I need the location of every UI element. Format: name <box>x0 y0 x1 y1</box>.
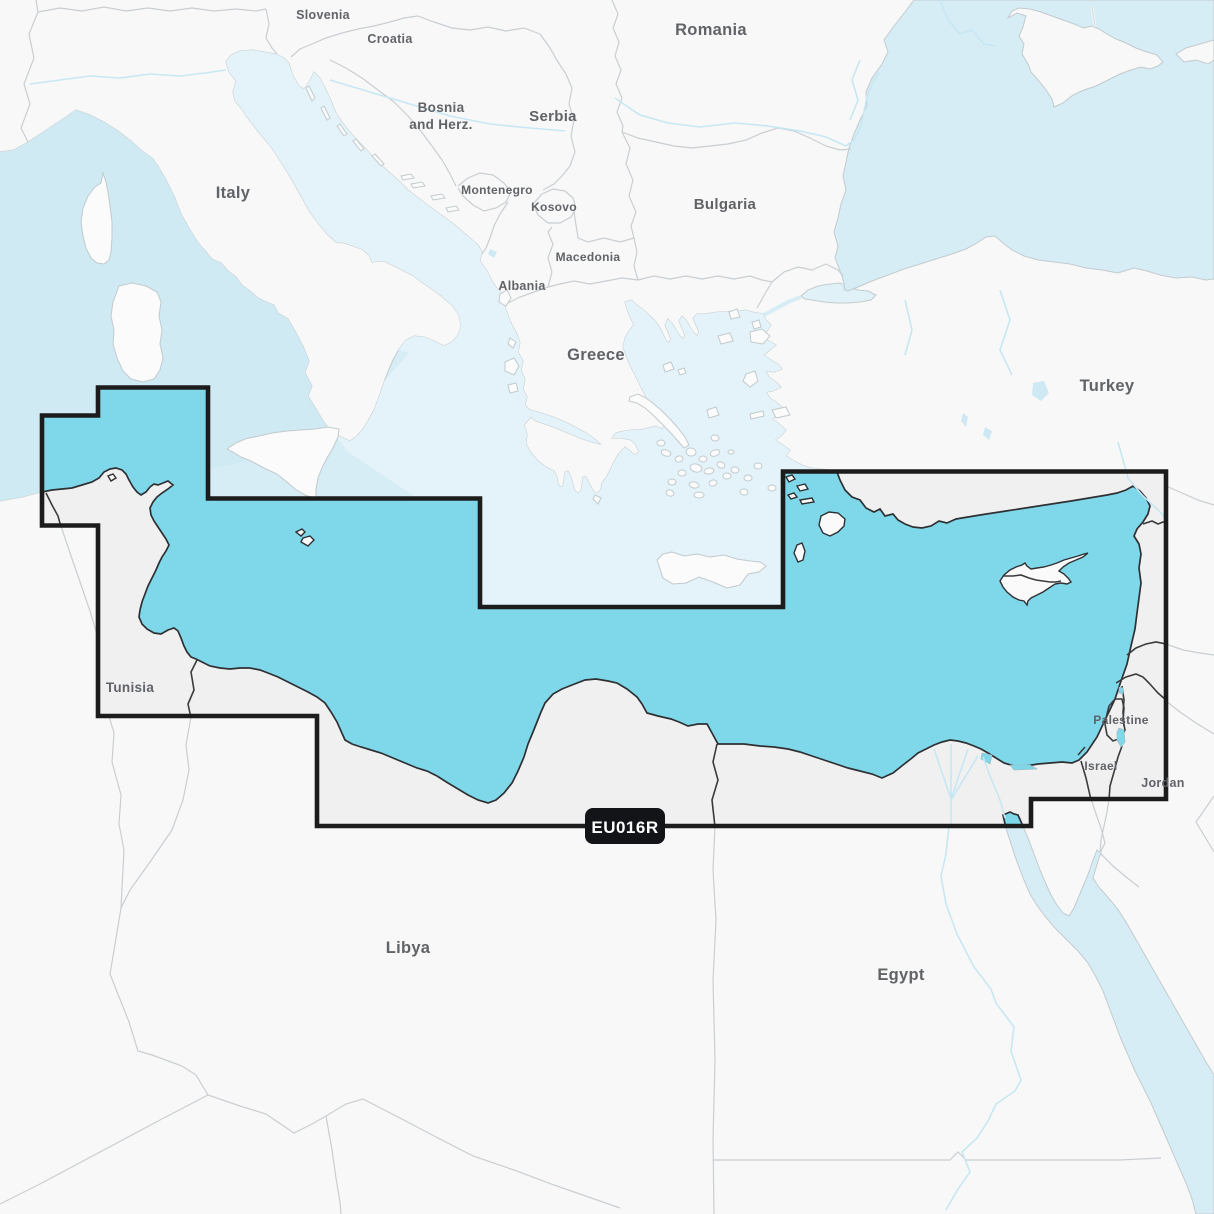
svg-text:Jordan: Jordan <box>1141 776 1184 790</box>
svg-text:Bosnia: Bosnia <box>418 100 465 115</box>
svg-text:Slovenia: Slovenia <box>296 8 351 22</box>
svg-text:Bulgaria: Bulgaria <box>694 196 757 213</box>
svg-text:Palestine: Palestine <box>1093 713 1148 727</box>
svg-text:Serbia: Serbia <box>529 108 577 125</box>
svg-text:and Herz.: and Herz. <box>409 117 472 132</box>
svg-text:Croatia: Croatia <box>367 32 413 46</box>
svg-text:Macedonia: Macedonia <box>556 250 621 264</box>
svg-text:Libya: Libya <box>386 939 431 957</box>
svg-text:Turkey: Turkey <box>1080 377 1135 395</box>
svg-text:Italy: Italy <box>216 184 251 202</box>
svg-text:Israel: Israel <box>1084 759 1117 773</box>
svg-text:Greece: Greece <box>567 346 625 364</box>
svg-text:Romania: Romania <box>675 21 747 39</box>
svg-text:Kosovo: Kosovo <box>531 200 577 214</box>
svg-text:EU016R: EU016R <box>591 818 658 837</box>
svg-text:Tunisia: Tunisia <box>106 680 155 695</box>
svg-text:Montenegro: Montenegro <box>461 183 533 197</box>
svg-text:Albania: Albania <box>498 279 546 293</box>
svg-text:Egypt: Egypt <box>877 966 925 984</box>
